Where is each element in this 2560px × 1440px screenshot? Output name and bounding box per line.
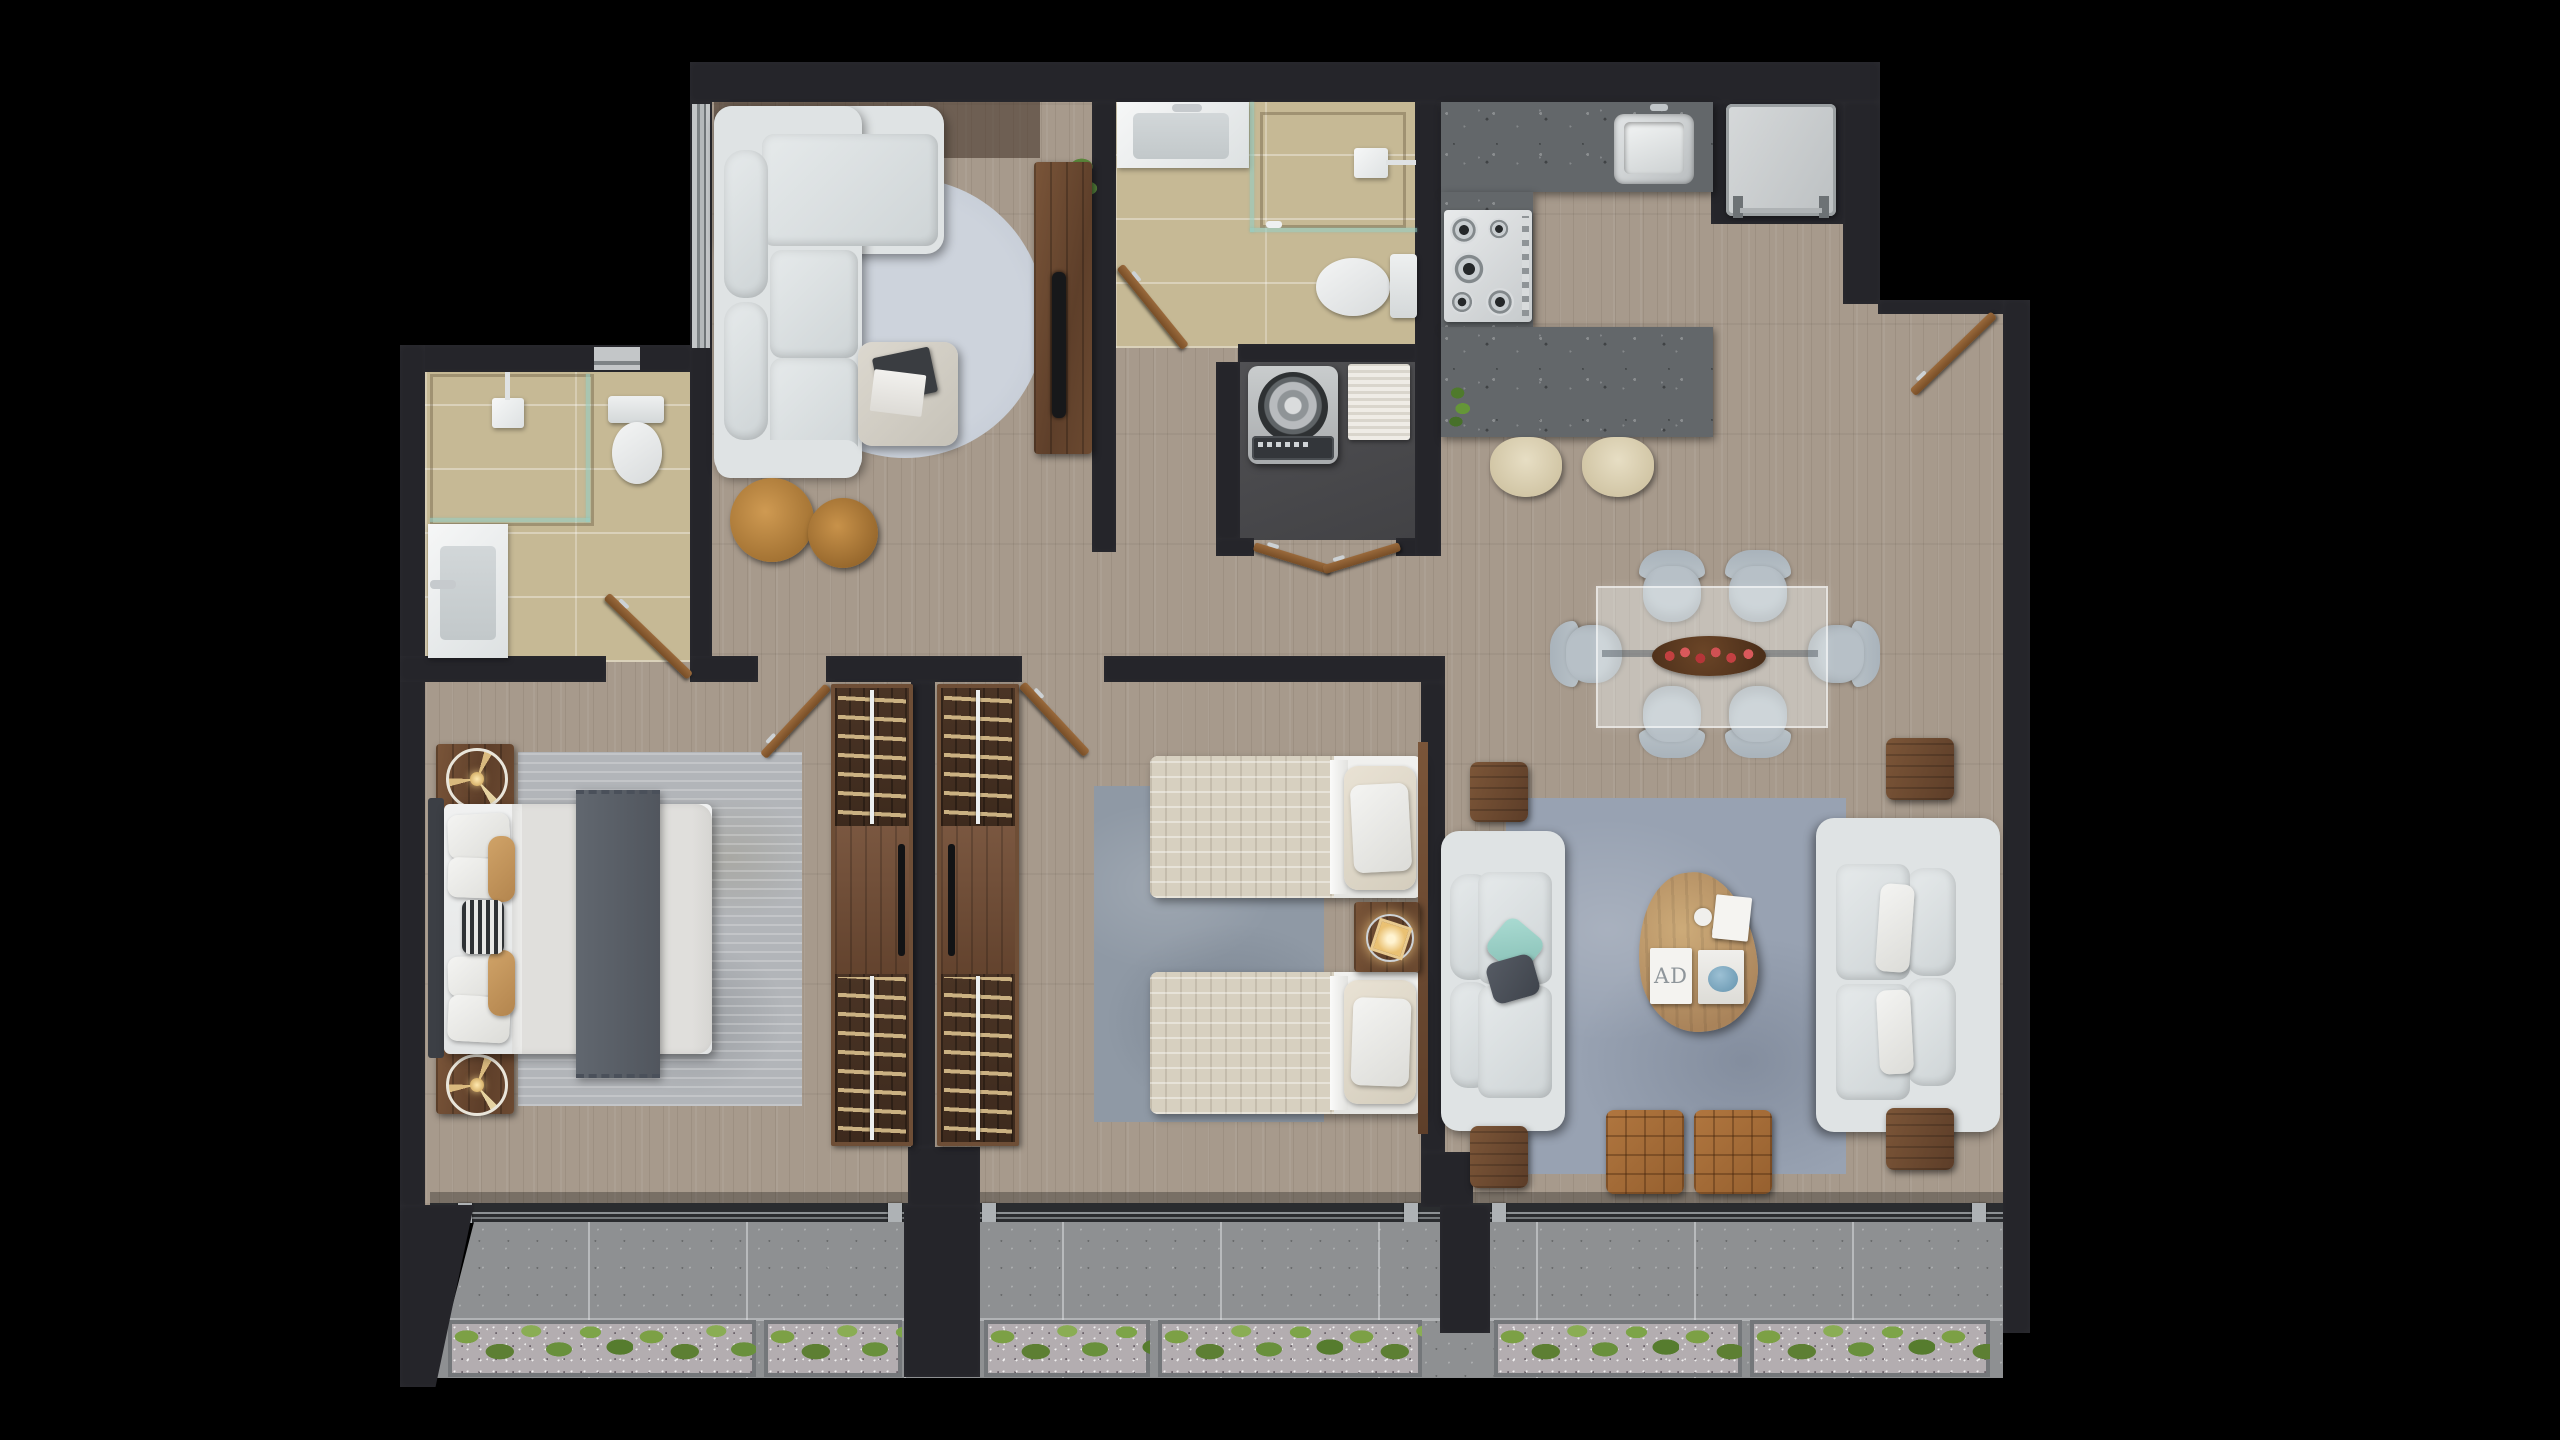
room-ensuite [425, 370, 692, 658]
room-closet [831, 682, 1017, 1147]
floor-plan-stage: AD [0, 0, 2560, 1440]
room-balcony [430, 1205, 2030, 1385]
room-bathroom-main [1115, 100, 1417, 348]
room-kitchen [1441, 102, 1880, 437]
room-family [712, 102, 1092, 552]
room-living [1445, 790, 2003, 1205]
room-dining [1520, 555, 2000, 790]
room-bedroom2 [1017, 682, 1421, 1205]
room-hotspots [0, 0, 2560, 1440]
room-laundry [1238, 360, 1417, 540]
room-entry [1845, 300, 2003, 555]
room-bedroom1 [425, 682, 831, 1205]
